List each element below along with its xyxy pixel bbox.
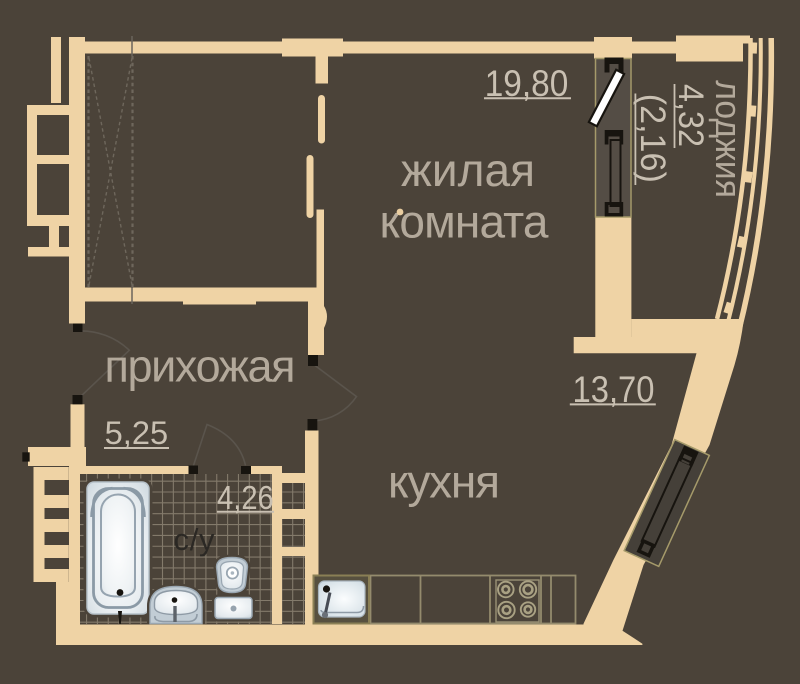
svg-text:комната: комната <box>380 196 549 248</box>
svg-text:лоджия: лоджия <box>708 80 749 198</box>
svg-text:4,26: 4,26 <box>217 479 274 516</box>
svg-text:5,25: 5,25 <box>105 415 169 451</box>
svg-text:(2,16): (2,16) <box>633 94 673 183</box>
svg-text:кухня: кухня <box>388 456 500 508</box>
svg-text:жилая: жилая <box>401 144 535 196</box>
svg-text:прихожая: прихожая <box>105 340 296 391</box>
svg-text:4,32: 4,32 <box>671 84 710 147</box>
svg-text:с/у: с/у <box>174 522 216 557</box>
